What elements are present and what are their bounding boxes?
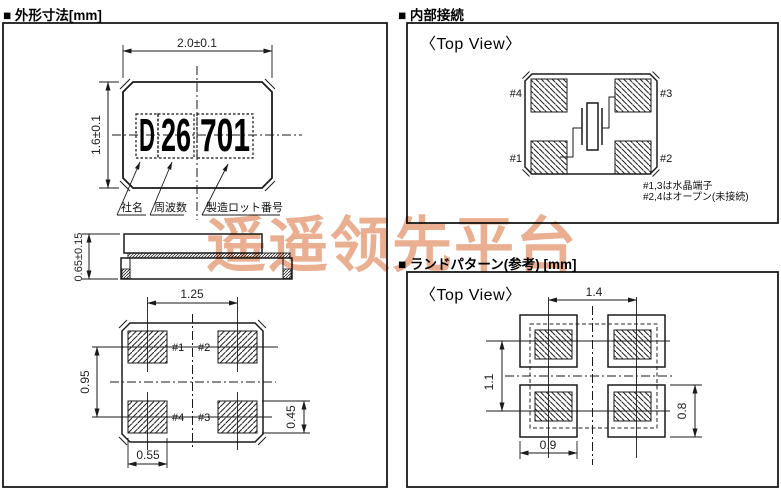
dim-land-pitch-y: 1.1 bbox=[482, 373, 496, 390]
outline-side-view-drawing: 0.65±0.15 bbox=[73, 233, 292, 282]
technical-drawing: 2.0±0.1 1.6±0.1 D 26 701 bbox=[0, 0, 781, 492]
land-section-title: ■ ランドパターン(参考) [mm] bbox=[398, 253, 576, 273]
dim-land-pad-height: 0.8 bbox=[675, 402, 689, 419]
dim-body-height: 1.6±0.1 bbox=[89, 115, 103, 155]
outline-section-title: ■ 外形寸法[mm] bbox=[3, 4, 102, 24]
land-pattern-drawing: 1.4 1.1 0.8 0.9 bbox=[482, 285, 702, 465]
marking-freq-code: 26 bbox=[161, 109, 191, 161]
dim-pad-pitch-y: 0.95 bbox=[78, 370, 92, 394]
callout-lot: 製造ロット番号 bbox=[206, 200, 283, 214]
conn-pad-label-2: #2 bbox=[660, 153, 672, 165]
conn-pad-label-1: #1 bbox=[510, 153, 522, 165]
pad-4 bbox=[128, 401, 167, 433]
pad-label-4: #4 bbox=[172, 412, 184, 424]
marking-lot-code: 701 bbox=[200, 109, 250, 161]
marking-company-code: D bbox=[139, 109, 155, 161]
crystal-symbol bbox=[560, 97, 615, 157]
package-base bbox=[121, 258, 292, 279]
connection-note-1: #1,3は水晶端子 bbox=[643, 181, 749, 192]
conn-pad-label-4: #4 bbox=[510, 88, 522, 100]
outline-top-view-drawing: 2.0±0.1 1.6±0.1 D 26 701 bbox=[89, 36, 302, 220]
connection-section-title: ■ 内部接続 bbox=[398, 4, 464, 24]
internal-connection-drawing: #4 #3 #1 #2 bbox=[510, 72, 673, 177]
conn-pad-3 bbox=[615, 79, 651, 112]
dim-body-width: 2.0±0.1 bbox=[177, 36, 217, 50]
outline-bottom-view-drawing: #1 #2 #4 #3 1.25 0.95 0.45 0.55 bbox=[78, 287, 310, 468]
connection-note-2: #2,4はオープン(未接続) bbox=[643, 192, 749, 203]
dim-land-pitch-x: 1.4 bbox=[586, 285, 603, 299]
callout-company: 社名 bbox=[121, 200, 143, 214]
pad-label-2: #2 bbox=[198, 342, 210, 354]
marking-text: D 26 701 bbox=[136, 109, 253, 161]
dim-pad-height: 0.45 bbox=[284, 405, 298, 429]
pad-label-1: #1 bbox=[172, 342, 184, 354]
land-view-label: 〈Top View〉 bbox=[420, 281, 522, 305]
conn-pad-4 bbox=[531, 79, 567, 112]
connection-view-label: 〈Top View〉 bbox=[420, 30, 522, 54]
dim-pad-pitch-x: 1.25 bbox=[180, 287, 204, 301]
dim-pad-width: 0.55 bbox=[136, 448, 160, 462]
dim-thickness: 0.65±0.15 bbox=[73, 233, 85, 282]
datasheet-page: 2.0±0.1 1.6±0.1 D 26 701 bbox=[0, 0, 781, 492]
connection-notes: #1,3は水晶端子 #2,4はオープン(未接続) bbox=[643, 181, 749, 203]
dim-land-pad-width: 0.9 bbox=[540, 438, 557, 452]
pad-3 bbox=[218, 401, 257, 433]
conn-pad-label-3: #3 bbox=[660, 88, 672, 100]
conn-pad-2 bbox=[615, 141, 651, 174]
pad-label-3: #3 bbox=[198, 412, 210, 424]
pad-2 bbox=[218, 331, 257, 363]
pad-1 bbox=[128, 331, 167, 363]
callout-frequency: 周波数 bbox=[154, 201, 187, 214]
package-lid bbox=[124, 234, 262, 253]
